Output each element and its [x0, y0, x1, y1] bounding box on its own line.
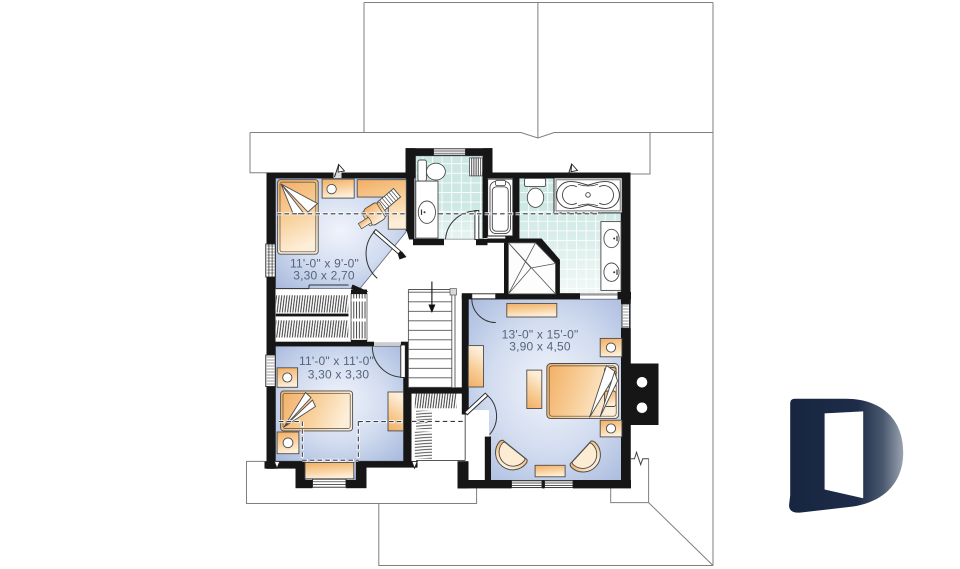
svg-text:3,30 x 3,30: 3,30 x 3,30	[308, 368, 370, 382]
svg-text:3,90 x 4,50: 3,90 x 4,50	[509, 340, 571, 354]
svg-text:11'-0" x 11'-0": 11'-0" x 11'-0"	[299, 354, 374, 368]
svg-text:3,30 x 2,70: 3,30 x 2,70	[293, 269, 355, 283]
